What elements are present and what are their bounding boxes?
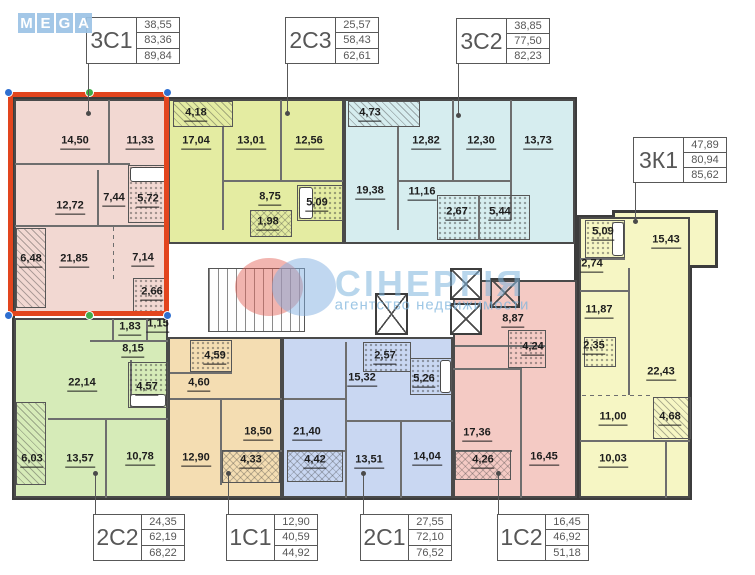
room-area-label: 12,90 xyxy=(181,452,211,467)
selection-handle[interactable] xyxy=(85,88,94,97)
unit-stat: 68,22 xyxy=(142,545,184,560)
room-area-label: 19,38 xyxy=(355,185,385,200)
selection-handle[interactable] xyxy=(4,88,13,97)
leader-line xyxy=(228,474,229,514)
wall xyxy=(284,398,345,400)
wall xyxy=(453,368,520,370)
leader-dot xyxy=(496,471,501,476)
wall xyxy=(452,100,454,180)
room-area-label: 17,04 xyxy=(181,135,211,150)
room-area-label: 2,74 xyxy=(580,258,603,273)
unit-code: 3С2 xyxy=(457,19,506,63)
room-area-label: 4,57 xyxy=(135,381,158,396)
room-area-label: 17,36 xyxy=(462,427,492,442)
bathtub xyxy=(130,394,166,407)
unit-stat: 82,23 xyxy=(507,48,549,63)
room-area-label: 11,87 xyxy=(585,304,614,319)
room-area-label: 4,18 xyxy=(184,107,207,122)
leader-line xyxy=(95,474,96,514)
room-area-label: 4,68 xyxy=(658,411,681,426)
selected-unit-outline xyxy=(8,92,169,316)
room-area-label: 10,03 xyxy=(598,453,628,468)
room-area-label: 10,78 xyxy=(125,451,155,466)
room-area-label: 4,73 xyxy=(358,107,381,122)
unit-code: 1С2 xyxy=(498,515,545,560)
unit-stat: 58,43 xyxy=(336,32,378,47)
leader-dot xyxy=(285,111,290,116)
unit-stat: 16,45 xyxy=(546,515,588,529)
unit-stat: 47,89 xyxy=(684,138,726,152)
room-area-label: 12,82 xyxy=(411,135,441,150)
unit-label-3k1[interactable]: 3К1 47,89 80,94 85,62 xyxy=(633,137,727,183)
room-area-label: 11,00 xyxy=(599,411,628,426)
room-area-label: 12,30 xyxy=(466,135,496,150)
unit-code: 3К1 xyxy=(634,138,683,182)
leader-dot xyxy=(633,219,638,224)
room-area-label: 5,09 xyxy=(591,226,614,241)
room-area-label: 6,03 xyxy=(20,453,43,468)
leader-dot xyxy=(226,471,231,476)
unit-label-3c2[interactable]: 3С2 38,85 77,50 82,23 xyxy=(456,18,550,64)
room-area-label: 22,43 xyxy=(646,366,676,381)
leader-line xyxy=(287,64,288,113)
bathtub xyxy=(440,360,451,393)
unit-label-3c1[interactable]: 3С1 38,55 83,36 89,84 xyxy=(86,17,180,64)
room-area-label: 4,60 xyxy=(187,377,210,392)
unit-code: 1С1 xyxy=(227,515,274,560)
logo-letter: E xyxy=(37,13,54,33)
unit-stat: 62,19 xyxy=(142,529,184,544)
leader-line xyxy=(498,474,499,514)
room-area-label: 15,32 xyxy=(347,372,377,387)
unit-stat: 25,57 xyxy=(336,18,378,32)
unit-stat: 83,36 xyxy=(137,32,179,47)
unit-stat: 72,10 xyxy=(409,529,451,544)
unit-stat: 40,59 xyxy=(275,529,317,544)
unit-label-2c2[interactable]: 2С2 24,35 62,19 68,22 xyxy=(93,514,185,561)
wall xyxy=(665,442,667,498)
leader-dot xyxy=(86,111,91,116)
unit-label-1c2[interactable]: 1С2 16,45 46,92 51,18 xyxy=(497,514,589,561)
wall xyxy=(520,368,522,498)
unit-stat: 46,92 xyxy=(546,529,588,544)
unit-stat: 51,18 xyxy=(546,545,588,560)
room-area-label: 13,73 xyxy=(523,135,553,150)
wall xyxy=(582,395,650,396)
wall xyxy=(400,422,402,498)
wall xyxy=(478,195,480,240)
room-area-label: 2,67 xyxy=(445,206,468,221)
wall xyxy=(628,268,630,395)
logo-letter: A xyxy=(75,13,92,33)
mega-logo: M E G A xyxy=(18,13,92,33)
room-area-label: 5,26 xyxy=(412,373,435,388)
wall xyxy=(222,127,224,230)
unit-stat: 44,92 xyxy=(275,545,317,560)
floor-plan: M E G A xyxy=(0,0,755,575)
room-area-label: 11,16 xyxy=(408,186,437,201)
unit-stat: 80,94 xyxy=(684,152,726,167)
wall xyxy=(397,180,512,182)
wall xyxy=(580,440,690,442)
wall xyxy=(280,100,282,180)
leader-line xyxy=(363,474,364,514)
unit-stat: 24,35 xyxy=(142,515,184,529)
unit-stat: 85,62 xyxy=(684,167,726,182)
watermark-ellipse-blue xyxy=(272,258,336,316)
wall xyxy=(48,418,168,420)
room-area-label: 5,44 xyxy=(488,206,511,221)
room-area-label: 1,83 xyxy=(118,321,141,336)
unit-code: 2С1 xyxy=(361,515,408,560)
room-area-label: 14,04 xyxy=(412,451,442,466)
unit-stat: 89,84 xyxy=(137,48,179,63)
room-area-label: 4,24 xyxy=(521,341,544,356)
unit-label-2c1[interactable]: 2С1 27,55 72,10 76,52 xyxy=(360,514,452,561)
unit-label-2c3[interactable]: 2С3 25,57 58,43 62,61 xyxy=(285,17,379,64)
watermark-subtitle: агентство недвижимости xyxy=(335,297,530,314)
logo-letter: M xyxy=(18,13,35,33)
unit-stat: 76,52 xyxy=(409,545,451,560)
room-area-label: 16,45 xyxy=(529,451,559,466)
unit-label-1c1[interactable]: 1С1 12,90 40,59 44,92 xyxy=(226,514,318,561)
unit-stat: 77,50 xyxy=(507,33,549,48)
room-area-label: 22,14 xyxy=(67,377,97,392)
room-area-label: 15,43 xyxy=(651,234,681,249)
leader-line xyxy=(458,64,459,115)
wall xyxy=(105,420,107,498)
unit-stat: 62,61 xyxy=(336,48,378,63)
room-area-label: 4,26 xyxy=(471,454,494,469)
selection-handle[interactable] xyxy=(163,88,172,97)
selection-handle[interactable] xyxy=(85,311,94,320)
room-area-label: 4,59 xyxy=(203,350,226,365)
wall xyxy=(397,127,399,230)
unit-stat: 38,55 xyxy=(137,18,179,32)
wall xyxy=(112,319,114,340)
room-area-label: 13,57 xyxy=(65,453,95,468)
selection-handle[interactable] xyxy=(163,311,172,320)
wall xyxy=(170,372,232,374)
unit-stat: 27,55 xyxy=(409,515,451,529)
logo-letter: G xyxy=(56,13,73,33)
wall xyxy=(222,180,343,182)
leader-line xyxy=(88,64,89,113)
room-area-label: 12,56 xyxy=(294,135,324,150)
unit-stat: 38,85 xyxy=(507,19,549,33)
selection-handle[interactable] xyxy=(4,311,13,320)
unit-code: 2С2 xyxy=(94,515,141,560)
room-area-label: 8,15 xyxy=(121,343,144,358)
room-area-label: 13,01 xyxy=(236,135,266,150)
room-area-label: 4,42 xyxy=(303,454,326,469)
room-area-label: 8,87 xyxy=(501,313,524,328)
room-area-label: 18,50 xyxy=(243,426,273,441)
room-area-label: 2,57 xyxy=(373,350,396,365)
unit-code: 2С3 xyxy=(286,18,335,63)
leader-dot xyxy=(93,471,98,476)
room-area-label: 1,98 xyxy=(256,216,279,231)
unit-stat: 12,90 xyxy=(275,515,317,529)
unit-code: 3С1 xyxy=(87,18,136,63)
leader-line xyxy=(635,183,636,221)
leader-dot xyxy=(456,113,461,118)
balcony-hatch xyxy=(16,402,46,485)
room-area-label: 13,51 xyxy=(354,454,384,469)
room-area-label: 8,75 xyxy=(258,191,281,206)
leader-dot xyxy=(361,471,366,476)
room-area-label: 2,35 xyxy=(582,340,605,355)
room-area-label: 5,09 xyxy=(305,197,328,212)
room-area-label: 4,33 xyxy=(239,454,262,469)
wall xyxy=(170,398,282,400)
room-area-label: 21,40 xyxy=(292,426,322,441)
wall xyxy=(580,290,628,292)
